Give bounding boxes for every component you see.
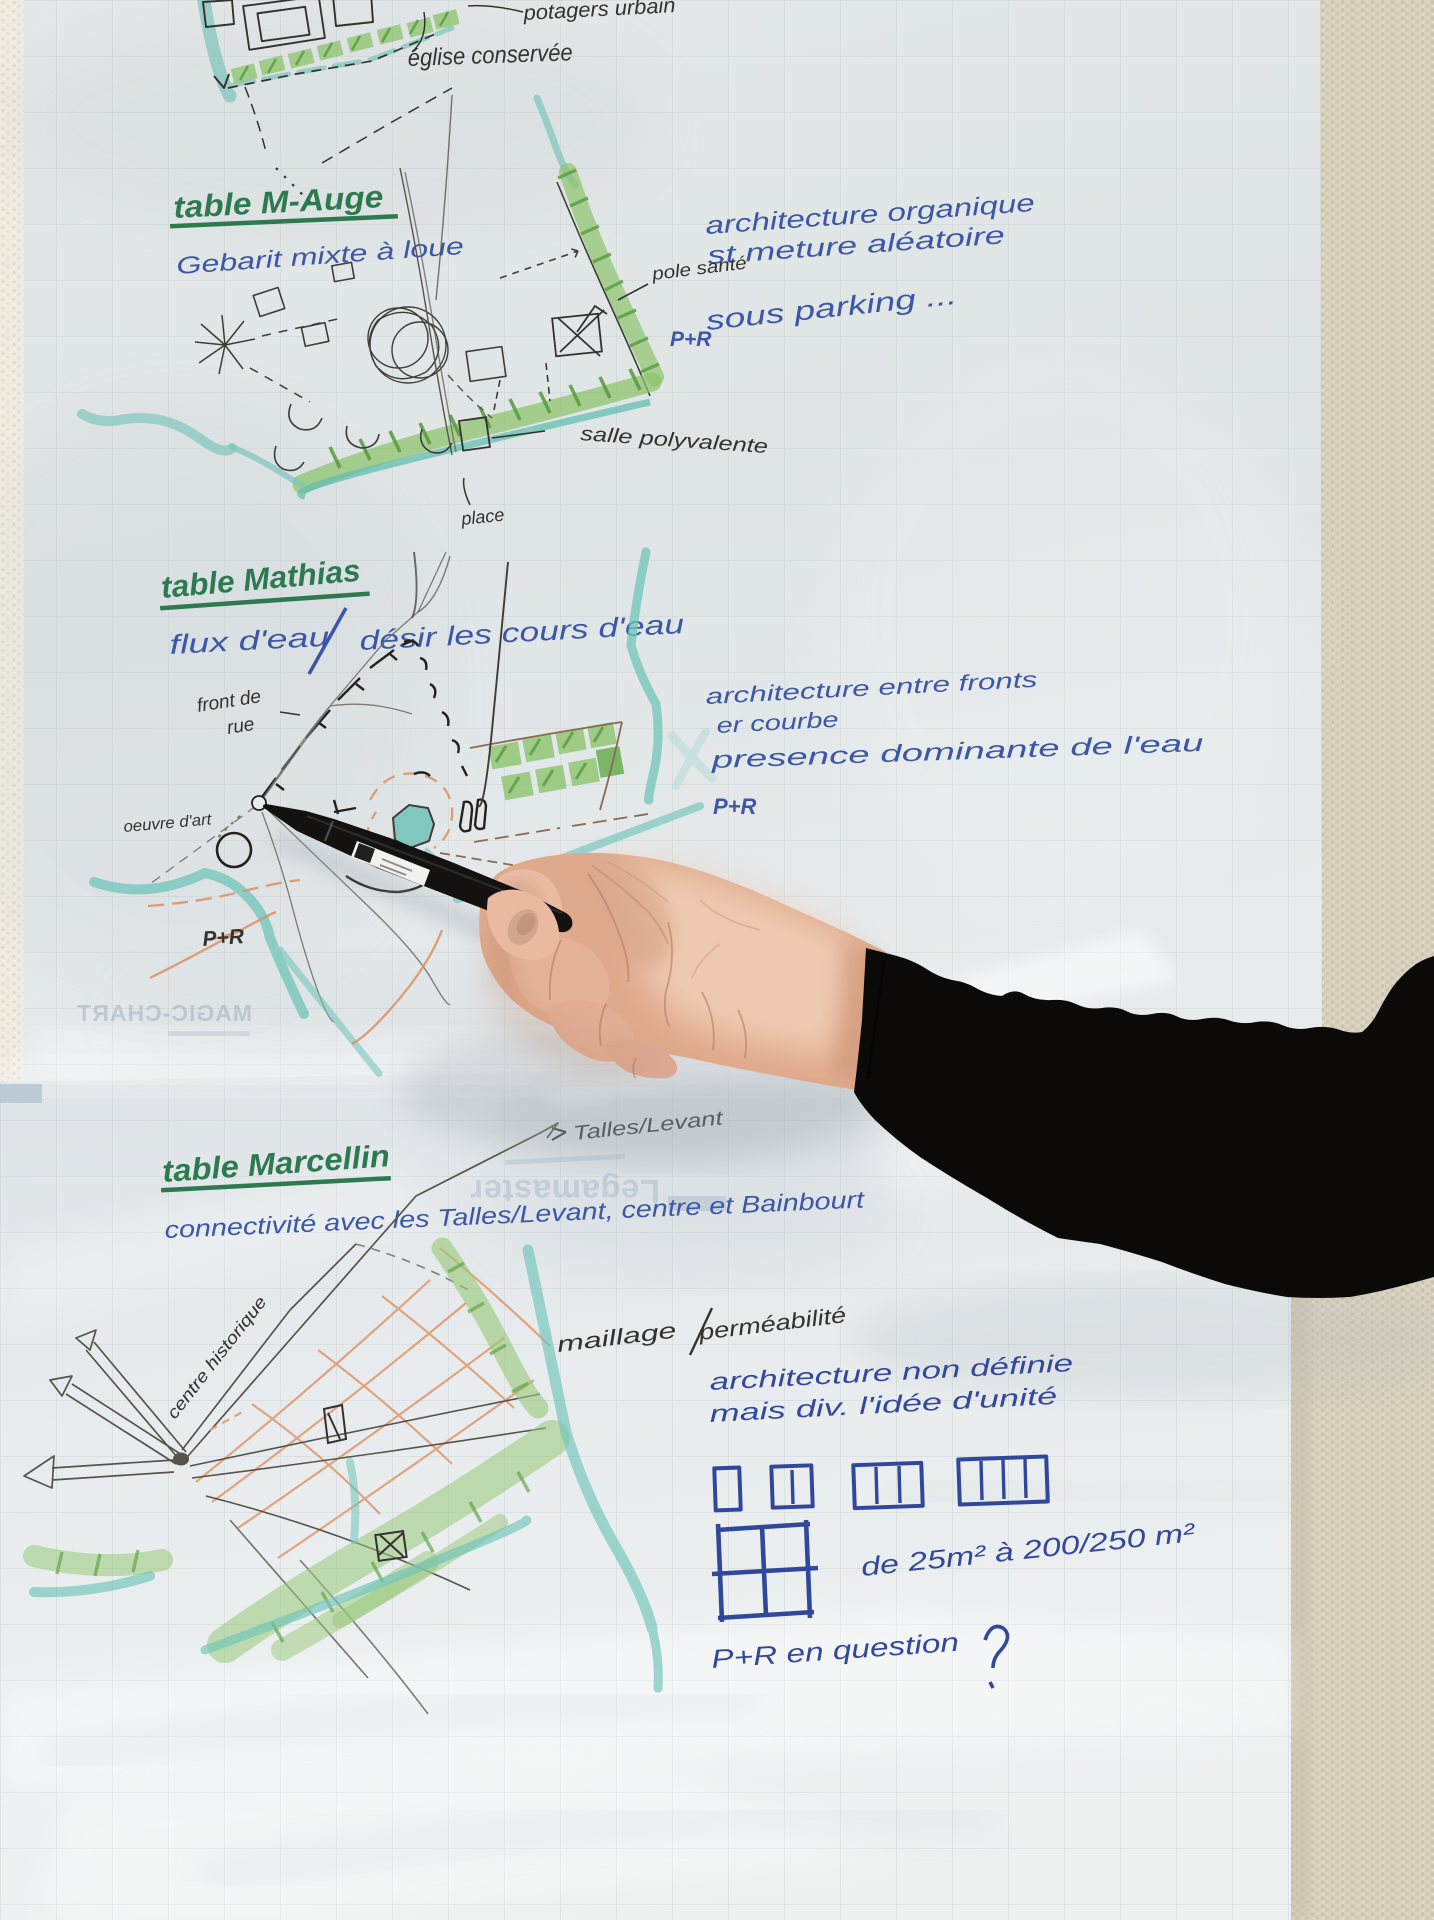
svg-text:P+R: P+R <box>713 794 757 819</box>
svg-text:P+R: P+R <box>202 925 246 951</box>
svg-text:MAGIC-CHART: MAGIC-CHART <box>76 1000 252 1026</box>
svg-text:P+R: P+R <box>670 328 712 351</box>
svg-text:rue: rue <box>225 714 255 739</box>
svg-text:église conservée: église conservée <box>407 39 573 72</box>
